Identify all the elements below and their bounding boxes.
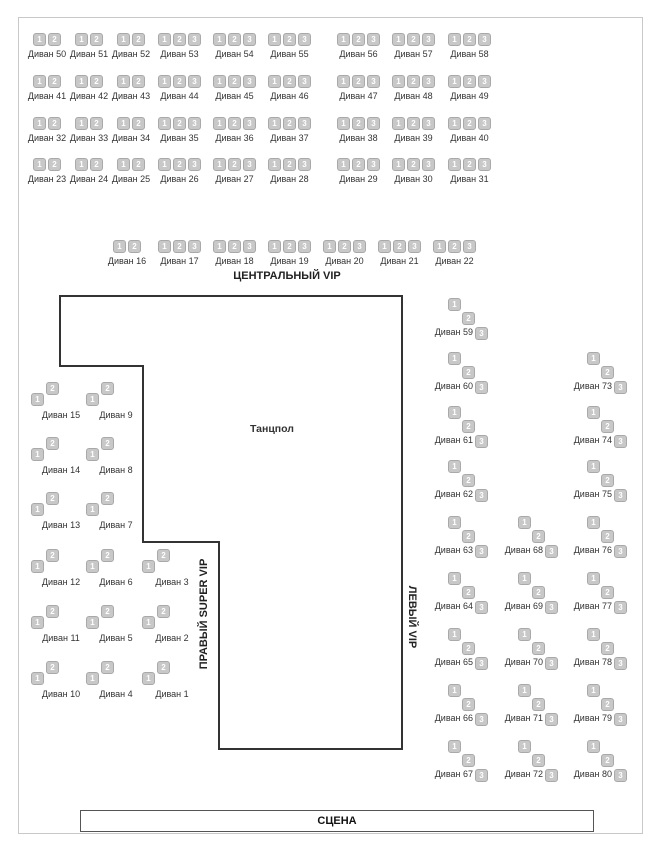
seat-61-2[interactable]: 2 <box>462 420 475 433</box>
seat-20-2[interactable]: 2 <box>338 240 351 253</box>
sofa-51-label: Диван 51 <box>70 49 108 59</box>
seat-21-2[interactable]: 2 <box>393 240 406 253</box>
sofa-56-label: Диван 56 <box>339 49 377 59</box>
seat-75-1[interactable]: 1 <box>587 460 600 473</box>
seat-33-1[interactable]: 1 <box>75 117 88 130</box>
seat-79-1[interactable]: 1 <box>587 684 600 697</box>
sofa-14-label: Диван 14 <box>42 465 80 475</box>
sofa-79-label: Диван 79 <box>574 713 612 723</box>
seat-10-2[interactable]: 2 <box>46 661 59 674</box>
seat-39-3[interactable]: 3 <box>422 117 435 130</box>
seat-8-1[interactable]: 1 <box>86 448 99 461</box>
seat-57-3[interactable]: 3 <box>422 33 435 46</box>
seat-76-2[interactable]: 2 <box>601 530 614 543</box>
seat-10-1[interactable]: 1 <box>31 672 44 685</box>
seat-37-2[interactable]: 2 <box>283 117 296 130</box>
seat-27-2[interactable]: 2 <box>228 158 241 171</box>
seat-72-3[interactable]: 3 <box>545 769 558 782</box>
sofa-77-label: Диван 77 <box>574 601 612 611</box>
left-vip-label: ЛЕВЫЙ VIP <box>406 586 418 648</box>
sofa-23-label: Диван 23 <box>28 174 66 184</box>
sofa-71-label: Диван 71 <box>505 713 543 723</box>
seat-4-1[interactable]: 1 <box>86 672 99 685</box>
seat-36-2[interactable]: 2 <box>228 117 241 130</box>
sofa-15-label: Диван 15 <box>42 410 80 420</box>
seat-31-1[interactable]: 1 <box>448 158 461 171</box>
seat-34-1[interactable]: 1 <box>117 117 130 130</box>
seat-2-2[interactable]: 2 <box>157 605 170 618</box>
seat-68-3[interactable]: 3 <box>545 545 558 558</box>
seat-58-1[interactable]: 1 <box>448 33 461 46</box>
sofa-63-label: Диван 63 <box>435 545 473 555</box>
sofa-66-label: Диван 66 <box>435 713 473 723</box>
seat-59-2[interactable]: 2 <box>462 312 475 325</box>
seat-26-3[interactable]: 3 <box>188 158 201 171</box>
seat-77-1[interactable]: 1 <box>587 572 600 585</box>
sofa-38-label: Диван 38 <box>339 133 377 143</box>
seat-29-1[interactable]: 1 <box>337 158 350 171</box>
seat-38-2[interactable]: 2 <box>352 117 365 130</box>
seat-70-3[interactable]: 3 <box>545 657 558 670</box>
seat-35-3[interactable]: 3 <box>188 117 201 130</box>
sofa-18-label: Диван 18 <box>215 256 253 266</box>
seat-13-2[interactable]: 2 <box>46 492 59 505</box>
seat-21-1[interactable]: 1 <box>378 240 391 253</box>
sofa-62-label: Диван 62 <box>435 489 473 499</box>
sofa-26-label: Диван 26 <box>160 174 198 184</box>
sofa-20-label: Диван 20 <box>325 256 363 266</box>
sofa-80-label: Диван 80 <box>574 769 612 779</box>
seat-26-1[interactable]: 1 <box>158 158 171 171</box>
seat-65-3[interactable]: 3 <box>475 657 488 670</box>
seat-15-1[interactable]: 1 <box>31 393 44 406</box>
seat-31-2[interactable]: 2 <box>463 158 476 171</box>
seat-62-2[interactable]: 2 <box>462 474 475 487</box>
seat-28-1[interactable]: 1 <box>268 158 281 171</box>
sofa-4-label: Диван 4 <box>99 689 132 699</box>
seat-37-1[interactable]: 1 <box>268 117 281 130</box>
sofa-7-label: Диван 7 <box>99 520 132 530</box>
seat-25-1[interactable]: 1 <box>117 158 130 171</box>
seat-54-2[interactable]: 2 <box>228 33 241 46</box>
sofa-32-label: Диван 32 <box>28 133 66 143</box>
sofa-16-label: Диван 16 <box>108 256 146 266</box>
seat-map: 12Диван 5012Диван 5112Диван 52123Диван 5… <box>0 0 659 851</box>
seat-78-2[interactable]: 2 <box>601 642 614 655</box>
seat-70-2[interactable]: 2 <box>532 642 545 655</box>
seat-75-3[interactable]: 3 <box>614 489 627 502</box>
sofa-12-label: Диван 12 <box>42 577 80 587</box>
seat-64-3[interactable]: 3 <box>475 601 488 614</box>
seat-32-1[interactable]: 1 <box>33 117 46 130</box>
seat-15-2[interactable]: 2 <box>46 382 59 395</box>
seat-80-2[interactable]: 2 <box>601 754 614 767</box>
seat-50-1[interactable]: 1 <box>33 33 46 46</box>
seat-67-3[interactable]: 3 <box>475 769 488 782</box>
seat-42-2[interactable]: 2 <box>90 75 103 88</box>
seat-68-2[interactable]: 2 <box>532 530 545 543</box>
seat-50-2[interactable]: 2 <box>48 33 61 46</box>
sofa-50-label: Диван 50 <box>28 49 66 59</box>
seat-17-2[interactable]: 2 <box>173 240 186 253</box>
seat-73-3[interactable]: 3 <box>614 381 627 394</box>
sofa-24-label: Диван 24 <box>70 174 108 184</box>
seat-20-1[interactable]: 1 <box>323 240 336 253</box>
seat-27-3[interactable]: 3 <box>243 158 256 171</box>
seat-26-2[interactable]: 2 <box>173 158 186 171</box>
sofa-6-label: Диван 6 <box>99 577 132 587</box>
seat-58-3[interactable]: 3 <box>478 33 491 46</box>
seat-41-1[interactable]: 1 <box>33 75 46 88</box>
seat-2-1[interactable]: 1 <box>142 616 155 629</box>
seat-40-1[interactable]: 1 <box>448 117 461 130</box>
seat-7-1[interactable]: 1 <box>86 503 99 516</box>
seat-56-1[interactable]: 1 <box>337 33 350 46</box>
seat-79-2[interactable]: 2 <box>601 698 614 711</box>
sofa-33-label: Диван 33 <box>70 133 108 143</box>
seat-21-3[interactable]: 3 <box>408 240 421 253</box>
seat-53-1[interactable]: 1 <box>158 33 171 46</box>
sofa-44-label: Диван 44 <box>160 91 198 101</box>
seat-49-1[interactable]: 1 <box>448 75 461 88</box>
seat-33-2[interactable]: 2 <box>90 117 103 130</box>
seat-6-2[interactable]: 2 <box>101 549 114 562</box>
seat-43-2[interactable]: 2 <box>132 75 145 88</box>
seat-9-2[interactable]: 2 <box>101 382 114 395</box>
sofa-34-label: Диван 34 <box>112 133 150 143</box>
seat-77-3[interactable]: 3 <box>614 601 627 614</box>
seat-74-3[interactable]: 3 <box>614 435 627 448</box>
sofa-5-label: Диван 5 <box>99 633 132 643</box>
sofa-55-label: Диван 55 <box>270 49 308 59</box>
seat-66-1[interactable]: 1 <box>448 684 461 697</box>
seat-6-1[interactable]: 1 <box>86 560 99 573</box>
sofa-46-label: Диван 46 <box>270 91 308 101</box>
seat-53-3[interactable]: 3 <box>188 33 201 46</box>
seat-52-1[interactable]: 1 <box>117 33 130 46</box>
sofa-1-label: Диван 1 <box>155 689 188 699</box>
seat-56-3[interactable]: 3 <box>367 33 380 46</box>
sofa-53-label: Диван 53 <box>160 49 198 59</box>
sofa-54-label: Диван 54 <box>215 49 253 59</box>
seat-30-3[interactable]: 3 <box>422 158 435 171</box>
seat-34-2[interactable]: 2 <box>132 117 145 130</box>
seat-78-3[interactable]: 3 <box>614 657 627 670</box>
sofa-2-label: Диван 2 <box>155 633 188 643</box>
sofa-64-label: Диван 64 <box>435 601 473 611</box>
seat-30-1[interactable]: 1 <box>392 158 405 171</box>
seat-39-2[interactable]: 2 <box>407 117 420 130</box>
sofa-28-label: Диван 28 <box>270 174 308 184</box>
sofa-43-label: Диван 43 <box>112 91 150 101</box>
sofa-13-label: Диван 13 <box>42 520 80 530</box>
seat-71-2[interactable]: 2 <box>532 698 545 711</box>
seat-35-1[interactable]: 1 <box>158 117 171 130</box>
seat-69-1[interactable]: 1 <box>518 572 531 585</box>
seat-18-1[interactable]: 1 <box>213 240 226 253</box>
sofa-76-label: Диван 76 <box>574 545 612 555</box>
seat-38-1[interactable]: 1 <box>337 117 350 130</box>
seat-54-3[interactable]: 3 <box>243 33 256 46</box>
sofa-59-label: Диван 59 <box>435 327 473 337</box>
sofa-45-label: Диван 45 <box>215 91 253 101</box>
sofa-42-label: Диван 42 <box>70 91 108 101</box>
seat-65-1[interactable]: 1 <box>448 628 461 641</box>
sofa-22-label: Диван 22 <box>435 256 473 266</box>
seat-23-2[interactable]: 2 <box>48 158 61 171</box>
seat-48-3[interactable]: 3 <box>422 75 435 88</box>
sofa-25-label: Диван 25 <box>112 174 150 184</box>
seat-69-2[interactable]: 2 <box>532 586 545 599</box>
stage-label: СЦЕНА <box>317 815 356 827</box>
seat-30-2[interactable]: 2 <box>407 158 420 171</box>
seat-49-2[interactable]: 2 <box>463 75 476 88</box>
seat-55-1[interactable]: 1 <box>268 33 281 46</box>
central-vip-label: ЦЕНТРАЛЬНЫЙ VIP <box>233 270 341 282</box>
seat-18-2[interactable]: 2 <box>228 240 241 253</box>
seat-20-3[interactable]: 3 <box>353 240 366 253</box>
sofa-11-label: Диван 11 <box>42 633 80 643</box>
seat-28-3[interactable]: 3 <box>298 158 311 171</box>
seat-55-3[interactable]: 3 <box>298 33 311 46</box>
sofa-74-label: Диван 74 <box>574 435 612 445</box>
sofa-29-label: Диван 29 <box>339 174 377 184</box>
seat-60-2[interactable]: 2 <box>462 366 475 379</box>
seat-8-2[interactable]: 2 <box>101 437 114 450</box>
sofa-8-label: Диван 8 <box>99 465 132 475</box>
seat-52-2[interactable]: 2 <box>132 33 145 46</box>
seat-36-3[interactable]: 3 <box>243 117 256 130</box>
seat-75-2[interactable]: 2 <box>601 474 614 487</box>
seat-66-2[interactable]: 2 <box>462 698 475 711</box>
seat-38-3[interactable]: 3 <box>367 117 380 130</box>
sofa-60-label: Диван 60 <box>435 381 473 391</box>
sofa-41-label: Диван 41 <box>28 91 66 101</box>
seat-78-1[interactable]: 1 <box>587 628 600 641</box>
seat-25-2[interactable]: 2 <box>132 158 145 171</box>
seat-73-2[interactable]: 2 <box>601 366 614 379</box>
seat-46-3[interactable]: 3 <box>298 75 311 88</box>
sofa-68-label: Диван 68 <box>505 545 543 555</box>
seat-72-2[interactable]: 2 <box>532 754 545 767</box>
sofa-48-label: Диван 48 <box>394 91 432 101</box>
seat-47-3[interactable]: 3 <box>367 75 380 88</box>
seat-45-1[interactable]: 1 <box>213 75 226 88</box>
seat-71-3[interactable]: 3 <box>545 713 558 726</box>
seat-71-1[interactable]: 1 <box>518 684 531 697</box>
seat-27-1[interactable]: 1 <box>213 158 226 171</box>
seat-59-3[interactable]: 3 <box>475 327 488 340</box>
seat-46-1[interactable]: 1 <box>268 75 281 88</box>
seat-80-1[interactable]: 1 <box>587 740 600 753</box>
seat-19-2[interactable]: 2 <box>283 240 296 253</box>
sofa-73-label: Диван 73 <box>574 381 612 391</box>
sofa-10-label: Диван 10 <box>42 689 80 699</box>
seat-66-3[interactable]: 3 <box>475 713 488 726</box>
seat-23-1[interactable]: 1 <box>33 158 46 171</box>
seat-63-1[interactable]: 1 <box>448 516 461 529</box>
seat-47-1[interactable]: 1 <box>337 75 350 88</box>
seat-80-3[interactable]: 3 <box>614 769 627 782</box>
seat-45-2[interactable]: 2 <box>228 75 241 88</box>
seat-22-1[interactable]: 1 <box>433 240 446 253</box>
seat-19-1[interactable]: 1 <box>268 240 281 253</box>
seat-57-1[interactable]: 1 <box>392 33 405 46</box>
seat-40-2[interactable]: 2 <box>463 117 476 130</box>
sofa-36-label: Диван 36 <box>215 133 253 143</box>
seat-28-2[interactable]: 2 <box>283 158 296 171</box>
sofa-58-label: Диван 58 <box>450 49 488 59</box>
seat-56-2[interactable]: 2 <box>352 33 365 46</box>
sofa-70-label: Диван 70 <box>505 657 543 667</box>
seat-74-2[interactable]: 2 <box>601 420 614 433</box>
seat-44-1[interactable]: 1 <box>158 75 171 88</box>
seat-18-3[interactable]: 3 <box>243 240 256 253</box>
seat-14-2[interactable]: 2 <box>46 437 59 450</box>
seat-29-2[interactable]: 2 <box>352 158 365 171</box>
seat-64-2[interactable]: 2 <box>462 586 475 599</box>
sofa-31-label: Диван 31 <box>450 174 488 184</box>
seat-53-2[interactable]: 2 <box>173 33 186 46</box>
seat-11-2[interactable]: 2 <box>46 605 59 618</box>
seat-13-1[interactable]: 1 <box>31 503 44 516</box>
seat-29-3[interactable]: 3 <box>367 158 380 171</box>
seat-5-1[interactable]: 1 <box>86 616 99 629</box>
seat-74-1[interactable]: 1 <box>587 406 600 419</box>
sofa-17-label: Диван 17 <box>160 256 198 266</box>
sofa-27-label: Диван 27 <box>215 174 253 184</box>
seat-11-1[interactable]: 1 <box>31 616 44 629</box>
seat-39-1[interactable]: 1 <box>392 117 405 130</box>
seat-5-2[interactable]: 2 <box>101 605 114 618</box>
seat-12-1[interactable]: 1 <box>31 560 44 573</box>
seat-41-2[interactable]: 2 <box>48 75 61 88</box>
seat-42-1[interactable]: 1 <box>75 75 88 88</box>
seat-61-3[interactable]: 3 <box>475 435 488 448</box>
seat-48-2[interactable]: 2 <box>407 75 420 88</box>
seat-31-3[interactable]: 3 <box>478 158 491 171</box>
seat-62-1[interactable]: 1 <box>448 460 461 473</box>
seat-62-3[interactable]: 3 <box>475 489 488 502</box>
seat-60-1[interactable]: 1 <box>448 352 461 365</box>
seat-16-2[interactable]: 2 <box>128 240 141 253</box>
sofa-21-label: Диван 21 <box>380 256 418 266</box>
seat-3-1[interactable]: 1 <box>142 560 155 573</box>
sofa-35-label: Диван 35 <box>160 133 198 143</box>
sofa-72-label: Диван 72 <box>505 769 543 779</box>
seat-54-1[interactable]: 1 <box>213 33 226 46</box>
seat-1-1[interactable]: 1 <box>142 672 155 685</box>
seat-16-1[interactable]: 1 <box>113 240 126 253</box>
right-super-vip-label: ПРАВЫЙ SUPER VIP <box>198 559 210 670</box>
seat-43-1[interactable]: 1 <box>117 75 130 88</box>
seat-24-2[interactable]: 2 <box>90 158 103 171</box>
seat-61-1[interactable]: 1 <box>448 406 461 419</box>
seat-63-3[interactable]: 3 <box>475 545 488 558</box>
sofa-69-label: Диван 69 <box>505 601 543 611</box>
seat-73-1[interactable]: 1 <box>587 352 600 365</box>
seat-22-3[interactable]: 3 <box>463 240 476 253</box>
sofa-40-label: Диван 40 <box>450 133 488 143</box>
seat-9-1[interactable]: 1 <box>86 393 99 406</box>
seat-1-2[interactable]: 2 <box>157 661 170 674</box>
seat-24-1[interactable]: 1 <box>75 158 88 171</box>
seat-76-1[interactable]: 1 <box>587 516 600 529</box>
seat-58-2[interactable]: 2 <box>463 33 476 46</box>
seat-76-3[interactable]: 3 <box>614 545 627 558</box>
stage: СЦЕНА <box>80 810 594 832</box>
seat-7-2[interactable]: 2 <box>101 492 114 505</box>
seat-63-2[interactable]: 2 <box>462 530 475 543</box>
seat-51-1[interactable]: 1 <box>75 33 88 46</box>
seat-65-2[interactable]: 2 <box>462 642 475 655</box>
seat-22-2[interactable]: 2 <box>448 240 461 253</box>
sofa-3-label: Диван 3 <box>155 577 188 587</box>
seat-36-1[interactable]: 1 <box>213 117 226 130</box>
seat-67-1[interactable]: 1 <box>448 740 461 753</box>
seat-47-2[interactable]: 2 <box>352 75 365 88</box>
seat-64-1[interactable]: 1 <box>448 572 461 585</box>
seat-59-1[interactable]: 1 <box>448 298 461 311</box>
seat-40-3[interactable]: 3 <box>478 117 491 130</box>
seat-32-2[interactable]: 2 <box>48 117 61 130</box>
sofa-78-label: Диван 78 <box>574 657 612 667</box>
seat-69-3[interactable]: 3 <box>545 601 558 614</box>
sofa-37-label: Диван 37 <box>270 133 308 143</box>
sofa-52-label: Диван 52 <box>112 49 150 59</box>
seat-72-1[interactable]: 1 <box>518 740 531 753</box>
sofa-19-label: Диван 19 <box>270 256 308 266</box>
seat-44-3[interactable]: 3 <box>188 75 201 88</box>
seat-48-1[interactable]: 1 <box>392 75 405 88</box>
seat-4-2[interactable]: 2 <box>101 661 114 674</box>
seat-46-2[interactable]: 2 <box>283 75 296 88</box>
seat-60-3[interactable]: 3 <box>475 381 488 394</box>
seat-12-2[interactable]: 2 <box>46 549 59 562</box>
seat-45-3[interactable]: 3 <box>243 75 256 88</box>
seat-57-2[interactable]: 2 <box>407 33 420 46</box>
seat-55-2[interactable]: 2 <box>283 33 296 46</box>
dancefloor-label: Танцпол <box>250 423 294 435</box>
seat-14-1[interactable]: 1 <box>31 448 44 461</box>
sofa-65-label: Диван 65 <box>435 657 473 667</box>
seat-19-3[interactable]: 3 <box>298 240 311 253</box>
seat-44-2[interactable]: 2 <box>173 75 186 88</box>
sofa-57-label: Диван 57 <box>394 49 432 59</box>
seat-37-3[interactable]: 3 <box>298 117 311 130</box>
seat-70-1[interactable]: 1 <box>518 628 531 641</box>
seat-51-2[interactable]: 2 <box>90 33 103 46</box>
seat-17-1[interactable]: 1 <box>158 240 171 253</box>
seat-67-2[interactable]: 2 <box>462 754 475 767</box>
seat-17-3[interactable]: 3 <box>188 240 201 253</box>
seat-35-2[interactable]: 2 <box>173 117 186 130</box>
seat-68-1[interactable]: 1 <box>518 516 531 529</box>
sofa-67-label: Диван 67 <box>435 769 473 779</box>
seat-3-2[interactable]: 2 <box>157 549 170 562</box>
sofa-39-label: Диван 39 <box>394 133 432 143</box>
sofa-30-label: Диван 30 <box>394 174 432 184</box>
seat-77-2[interactable]: 2 <box>601 586 614 599</box>
sofa-49-label: Диван 49 <box>450 91 488 101</box>
sofa-9-label: Диван 9 <box>99 410 132 420</box>
seat-49-3[interactable]: 3 <box>478 75 491 88</box>
sofa-47-label: Диван 47 <box>339 91 377 101</box>
sofa-61-label: Диван 61 <box>435 435 473 445</box>
sofa-75-label: Диван 75 <box>574 489 612 499</box>
seat-79-3[interactable]: 3 <box>614 713 627 726</box>
